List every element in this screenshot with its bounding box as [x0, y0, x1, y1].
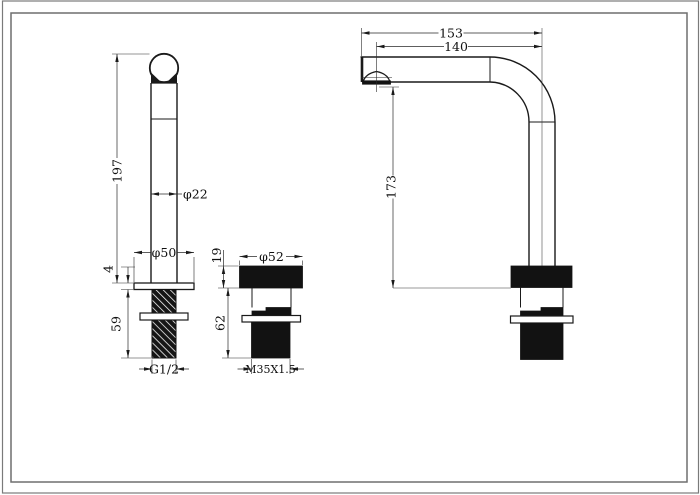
dim-shank-length-label: 59 [109, 316, 124, 332]
base-collar [521, 308, 564, 317]
bend-outer-arc [490, 57, 555, 122]
dim-tube-dia-label: φ22 [183, 187, 208, 202]
valve-view: φ52 19 62 M35X1.5 [209, 248, 304, 376]
mounting-nut [140, 313, 188, 320]
escutcheon [511, 266, 572, 288]
dim-reach-center-label: 140 [444, 39, 468, 54]
dim-cap-height-label: 19 [209, 248, 224, 264]
valve-threaded-body [252, 322, 291, 358]
base-flange [134, 283, 194, 290]
front-view: 197 4 59 φ50 φ22 G1/2 [101, 54, 208, 377]
base-threaded-body [521, 323, 564, 360]
base-nut [511, 316, 574, 323]
faucet-technical-drawing: 197 4 59 φ50 φ22 G1/2 [0, 0, 700, 495]
drawing-sheet: 197 4 59 φ50 φ22 G1/2 [0, 0, 700, 495]
bend-inner-arc [490, 82, 529, 122]
dim-flange-thickness-label: 4 [101, 265, 116, 273]
dim-thread-label: G1/2 [149, 362, 179, 377]
dim-valve-thread-label: M35X1.5 [245, 363, 296, 376]
dim-cap-dia-label: φ52 [259, 249, 284, 264]
dim-height-label: 197 [110, 159, 125, 183]
spout-top-bend-circle [150, 54, 178, 82]
dim-body-length-label: 62 [213, 315, 228, 331]
valve-nut [242, 316, 301, 323]
dim-outlet-height-label: 173 [384, 175, 399, 199]
sheet-border [3, 1, 699, 493]
dim-flange-dia-label: φ50 [152, 245, 177, 260]
threaded-shank [152, 290, 176, 359]
side-view: 153 140 173 [361, 26, 574, 360]
valve-collar [252, 308, 291, 316]
valve-cap [240, 266, 303, 288]
